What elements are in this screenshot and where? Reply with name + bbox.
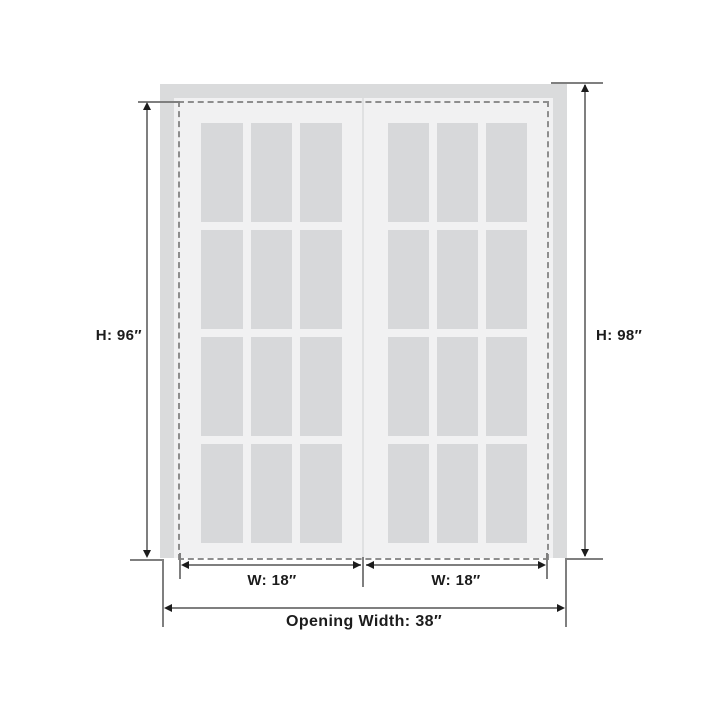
extension-bar [565,558,603,560]
extension-bar [546,553,548,579]
extension-bar [551,82,603,84]
diagram-canvas: H: 96″ H: 98″ W: 18″ W: 18″ Opening Widt… [0,0,720,720]
arrowhead-down-icon [581,549,589,557]
extension-bar [162,560,164,627]
arrowhead-down-icon [143,550,151,558]
arrowhead-right-icon [353,561,361,569]
arrowhead-right-icon [538,561,546,569]
door-width-left-label: W: 18″ [212,572,332,589]
arrowhead-left-icon [366,561,374,569]
arrowhead-up-icon [581,84,589,92]
door-slab-outline [178,101,549,560]
dimension-line [146,104,148,556]
arrowhead-up-icon [143,102,151,110]
opening-height-label: H: 98″ [596,327,642,344]
door-width-right-label: W: 18″ [396,572,516,589]
arrowhead-right-icon [557,604,565,612]
dimension-line [166,607,563,609]
arrowhead-left-icon [164,604,172,612]
dimension-line [584,85,586,556]
extension-bar [362,557,364,587]
door-height-label: H: 96″ [42,327,142,344]
extension-bar [130,559,164,561]
extension-bar [565,560,567,627]
dimension-line [366,564,544,566]
arrowhead-left-icon [181,561,189,569]
dimension-line [183,564,361,566]
opening-width-label: Opening Width: 38″ [244,613,484,631]
